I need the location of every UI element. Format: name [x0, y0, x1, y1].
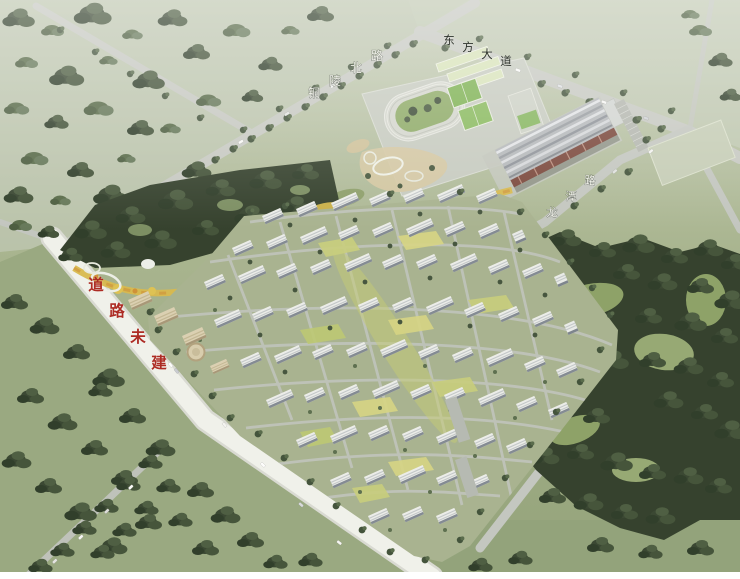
artwork-shape	[473, 454, 477, 458]
artwork-shape	[318, 250, 323, 255]
artwork-shape	[388, 528, 392, 532]
artwork-shape	[328, 326, 333, 331]
road-label-e-char-3: 路	[585, 174, 596, 187]
artwork-shape	[543, 380, 547, 384]
road-label-nw-char-3: 北	[350, 61, 362, 75]
artwork-shape	[453, 242, 458, 247]
artwork-shape	[308, 410, 312, 414]
artwork-shape	[141, 259, 155, 269]
rendering-image: 铜 陵 北 路 东 方 大 道 龙 潭 路 道 路 未 建	[0, 0, 740, 579]
masterplan-scene: 铜 陵 北 路 东 方 大 道 龙 潭 路 道 路 未 建	[0, 0, 740, 579]
artwork-shape	[258, 333, 263, 338]
road-label-n-char-3: 大	[481, 47, 493, 61]
road-label-n-char-2: 方	[462, 40, 474, 54]
road-label-n-char-1: 东	[443, 33, 455, 47]
artwork-shape	[513, 416, 517, 420]
artwork-shape	[498, 280, 503, 285]
artwork-shape	[388, 244, 393, 249]
artwork-shape	[428, 490, 432, 494]
artwork-shape	[443, 528, 447, 532]
artwork-shape	[518, 248, 523, 253]
artwork-shape	[363, 280, 368, 285]
artwork-shape	[228, 296, 233, 301]
artwork-shape	[133, 289, 138, 294]
bottom-margin	[0, 572, 740, 579]
artwork-shape	[533, 333, 538, 338]
artwork-shape	[192, 348, 200, 356]
artwork-shape	[398, 320, 403, 325]
road-label-nw-char-2: 陵	[329, 74, 341, 88]
road-label-nw-char-1: 铜	[308, 85, 320, 100]
artwork-shape	[423, 364, 427, 368]
road-label-sw-char-4: 建	[151, 354, 167, 372]
artwork-shape	[283, 370, 288, 375]
artwork-shape	[468, 324, 473, 329]
road-label-sw-char-1: 道	[88, 275, 104, 294]
road-label-e-char-1: 龙	[547, 206, 558, 219]
artwork-shape	[493, 370, 497, 374]
artwork-shape	[543, 293, 548, 298]
haze-overlay	[0, 0, 740, 230]
road-label-sw-char-2: 路	[109, 301, 125, 320]
road-label-e-char-2: 潭	[566, 190, 577, 203]
artwork-shape	[358, 490, 362, 494]
road-label-n-char-4: 道	[500, 54, 512, 68]
artwork-shape	[293, 288, 298, 293]
artwork-shape	[248, 260, 253, 265]
road-label-sw-char-3: 未	[129, 327, 146, 346]
artwork-shape	[353, 364, 357, 368]
artwork-shape	[333, 450, 337, 454]
artwork-shape	[403, 448, 407, 452]
artwork-shape	[428, 276, 433, 281]
road-label-nw-char-4: 路	[371, 48, 383, 63]
artwork-shape	[213, 308, 217, 312]
artwork-shape	[378, 406, 382, 410]
